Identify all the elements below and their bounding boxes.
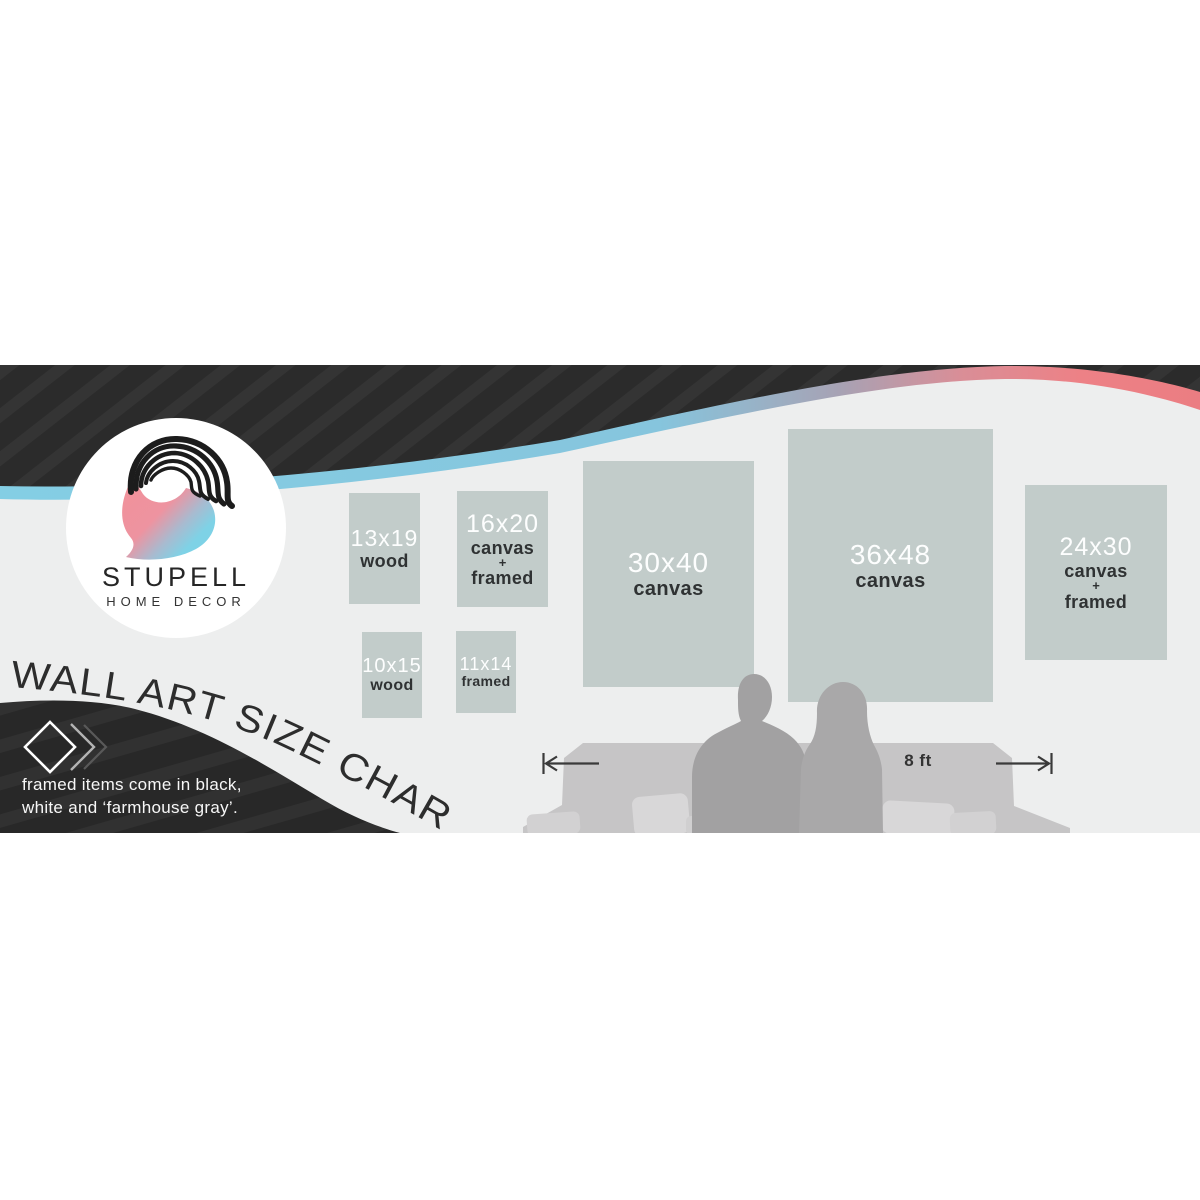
- size-label: 13x19: [351, 526, 419, 552]
- banner-top-hairline: [0, 365, 1200, 368]
- size-box-36x48: 36x48 canvas: [788, 429, 993, 702]
- size-label: 24x30: [1059, 533, 1132, 561]
- size-label: 16x20: [466, 510, 539, 538]
- size-chart-banner: 13x19 wood 16x20 canvas + framed 10x15 w…: [0, 365, 1200, 833]
- person-silhouette-right: [799, 682, 883, 833]
- couch-pillows: [526, 793, 996, 833]
- diamond-icon: [25, 722, 106, 772]
- size-box-24x30: 24x30 canvas + framed: [1025, 485, 1167, 660]
- brand-name: STUPELL: [96, 562, 256, 593]
- product-image: 13x19 wood 16x20 canvas + framed 10x15 w…: [0, 0, 1200, 1200]
- size-label: 11x14: [460, 654, 513, 674]
- stupell-s-icon: [122, 439, 232, 560]
- plus-label: +: [1092, 581, 1100, 591]
- couch-body: [523, 743, 1070, 833]
- size-box-30x40: 30x40 canvas: [583, 461, 754, 687]
- material-label: framed: [1065, 592, 1127, 612]
- brand-tagline: HOME DECOR: [96, 594, 256, 609]
- material-label: framed: [471, 568, 533, 588]
- measurement-arrow-right: [996, 753, 1052, 774]
- material-label: wood: [360, 551, 409, 571]
- size-box-13x19: 13x19 wood: [349, 493, 420, 604]
- size-label: 36x48: [850, 539, 931, 570]
- plus-label: +: [499, 558, 507, 568]
- measurement-arrow-left: [544, 753, 600, 774]
- size-box-11x14: 11x14 framed: [456, 631, 516, 713]
- measurement-arrows: [544, 753, 1052, 774]
- footnote-line-2: white and ‘farmhouse gray’.: [22, 798, 238, 818]
- size-box-10x15: 10x15 wood: [362, 632, 422, 718]
- measurement-label: 8 ft: [888, 751, 948, 771]
- logo-s-strands: [131, 439, 232, 506]
- footnote-line-1: framed items come in black,: [22, 775, 242, 795]
- material-label: framed: [461, 674, 510, 690]
- size-label: 30x40: [628, 547, 709, 578]
- size-box-16x20: 16x20 canvas + framed: [457, 491, 548, 607]
- size-label: 10x15: [362, 655, 422, 677]
- material-label: canvas: [633, 578, 703, 600]
- material-label: wood: [370, 677, 413, 695]
- material-label: canvas: [855, 570, 925, 592]
